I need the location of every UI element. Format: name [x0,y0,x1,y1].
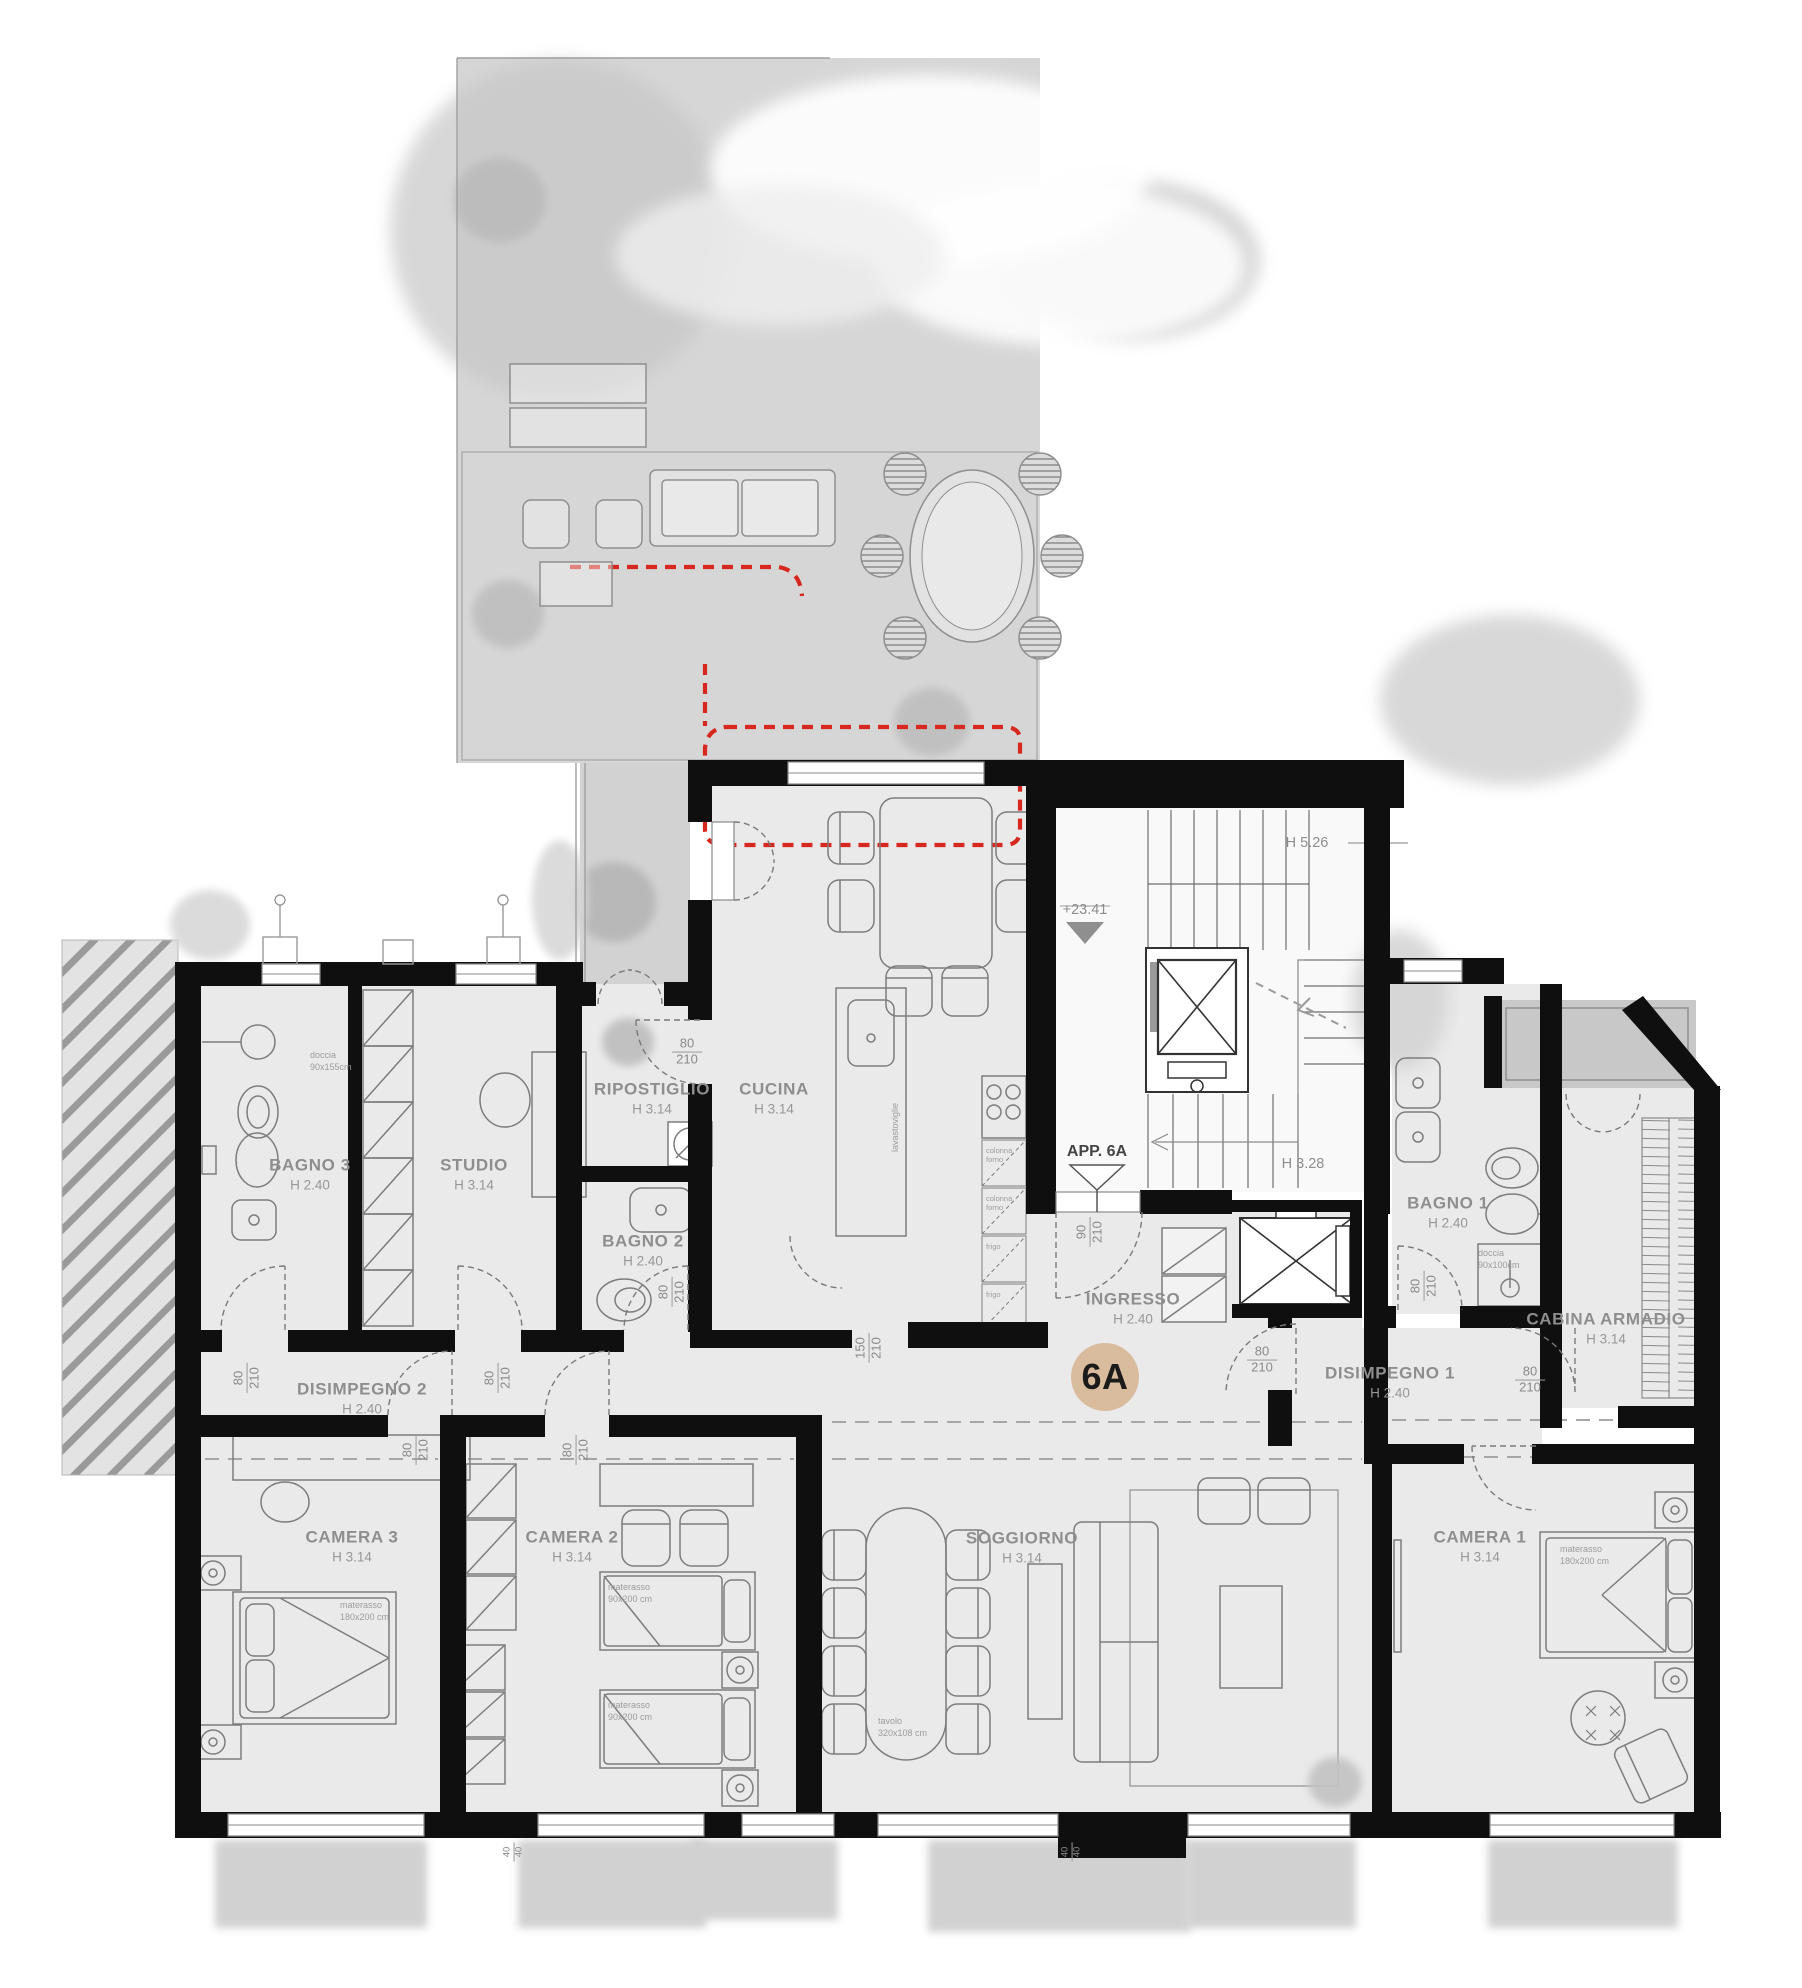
note-mattress-camera2a: materasso 90x200 cm [608,1582,652,1605]
door-dim-camera3: 80 210 [401,1435,432,1465]
note-mattress-camera2b: materasso 90x200 cm [608,1700,652,1723]
room-label-cabina-armadio: CABINA ARMADIO H 3.14 [1526,1310,1685,1347]
stair-height-upper: H 5.26 [1286,835,1329,851]
room-label-ripostiglio: RIPOSTIGLIO H 3.14 [594,1080,710,1117]
note-mattress-camera3: materasso 180x200 cm [340,1600,389,1623]
room-label-studio: STUDIO H 3.14 [440,1156,508,1193]
neighbour-hatch [62,940,178,1475]
door-dim-bagno1: 80 210 [1409,1271,1440,1301]
room-label-bagno1: BAGNO 1 H 2.40 [1407,1194,1489,1231]
elevator-main [1146,948,1248,1092]
floorplan-drawing [0,0,1802,1988]
elevator-secondary [1240,1206,1352,1304]
note-shower-bagno3: doccia 90x155cm [310,1050,352,1073]
plant-icon [1308,1757,1362,1807]
room-label-bagno3: BAGNO 3 H 2.40 [269,1156,351,1193]
note-fridge-2: frigo [986,1290,1001,1299]
room-label-disimpegno1: DISIMPEGNO 1 H 2.40 [1325,1364,1455,1401]
room-label-camera3: CAMERA 3 H 3.14 [306,1528,399,1565]
door-dim-ripostiglio: 80 210 [672,1037,702,1068]
sill-dim-left: 40 40 [503,1843,526,1862]
note-fridge-1: frigo [986,1242,1001,1251]
door-dim-cabina: 80 210 [1515,1365,1545,1396]
bottom-balconies [215,1840,1678,1932]
elevation-marker: +23.41 [1063,902,1108,918]
note-mattress-camera1: materasso 180x200 cm [1560,1544,1609,1567]
door-dim-bagno2: 80 210 [657,1277,688,1307]
door-dim-entrance: 90 210 [1075,1217,1106,1247]
room-label-soggiorno: SOGGIORNO H 3.14 [966,1529,1078,1566]
room-label-bagno2: BAGNO 2 H 2.40 [602,1232,684,1269]
floorplan-6a: 6A BAGNO 3 H 2.40 STUDIO H 3.14 RIPOSTIG… [0,0,1802,1988]
door-dim-camera2: 80 210 [561,1435,592,1465]
room-label-camera2: CAMERA 2 H 3.14 [526,1528,619,1565]
note-shower-bagno1: doccia 90x100cm [1478,1248,1520,1271]
apartment-badge-label: 6A [1081,1356,1128,1398]
note-oven-column-2: colonna forno [986,1194,1012,1212]
door-dim-disimpegno1: 80 210 [1247,1345,1277,1376]
room-label-ingresso: INGRESSO H 2.40 [1086,1290,1181,1327]
cabina-armadio-rail [1642,1118,1696,1398]
dim-kitchen-opening: 150 210 [854,1333,885,1363]
door-dim-bagno3: 80 210 [232,1363,263,1393]
note-dishwasher: lavastoviglie [890,1103,902,1152]
door-dim-studio: 80 210 [483,1363,514,1393]
apartment-entry-marker: APP. 6A [1067,1143,1127,1161]
apartment-badge: 6A [1071,1343,1139,1411]
note-dining-table: tavolo 320x108 cm [878,1716,927,1739]
room-label-cucina: CUCINA H 3.14 [739,1080,809,1117]
note-oven-column-1: colonna forno [986,1146,1012,1164]
sill-dim-right: 40 40 [1061,1843,1084,1862]
stair-height-lower: H 3.28 [1282,1156,1325,1172]
room-label-camera1: CAMERA 1 H 3.14 [1434,1528,1527,1565]
room-label-disimpegno2: DISIMPEGNO 2 H 2.40 [297,1380,427,1417]
